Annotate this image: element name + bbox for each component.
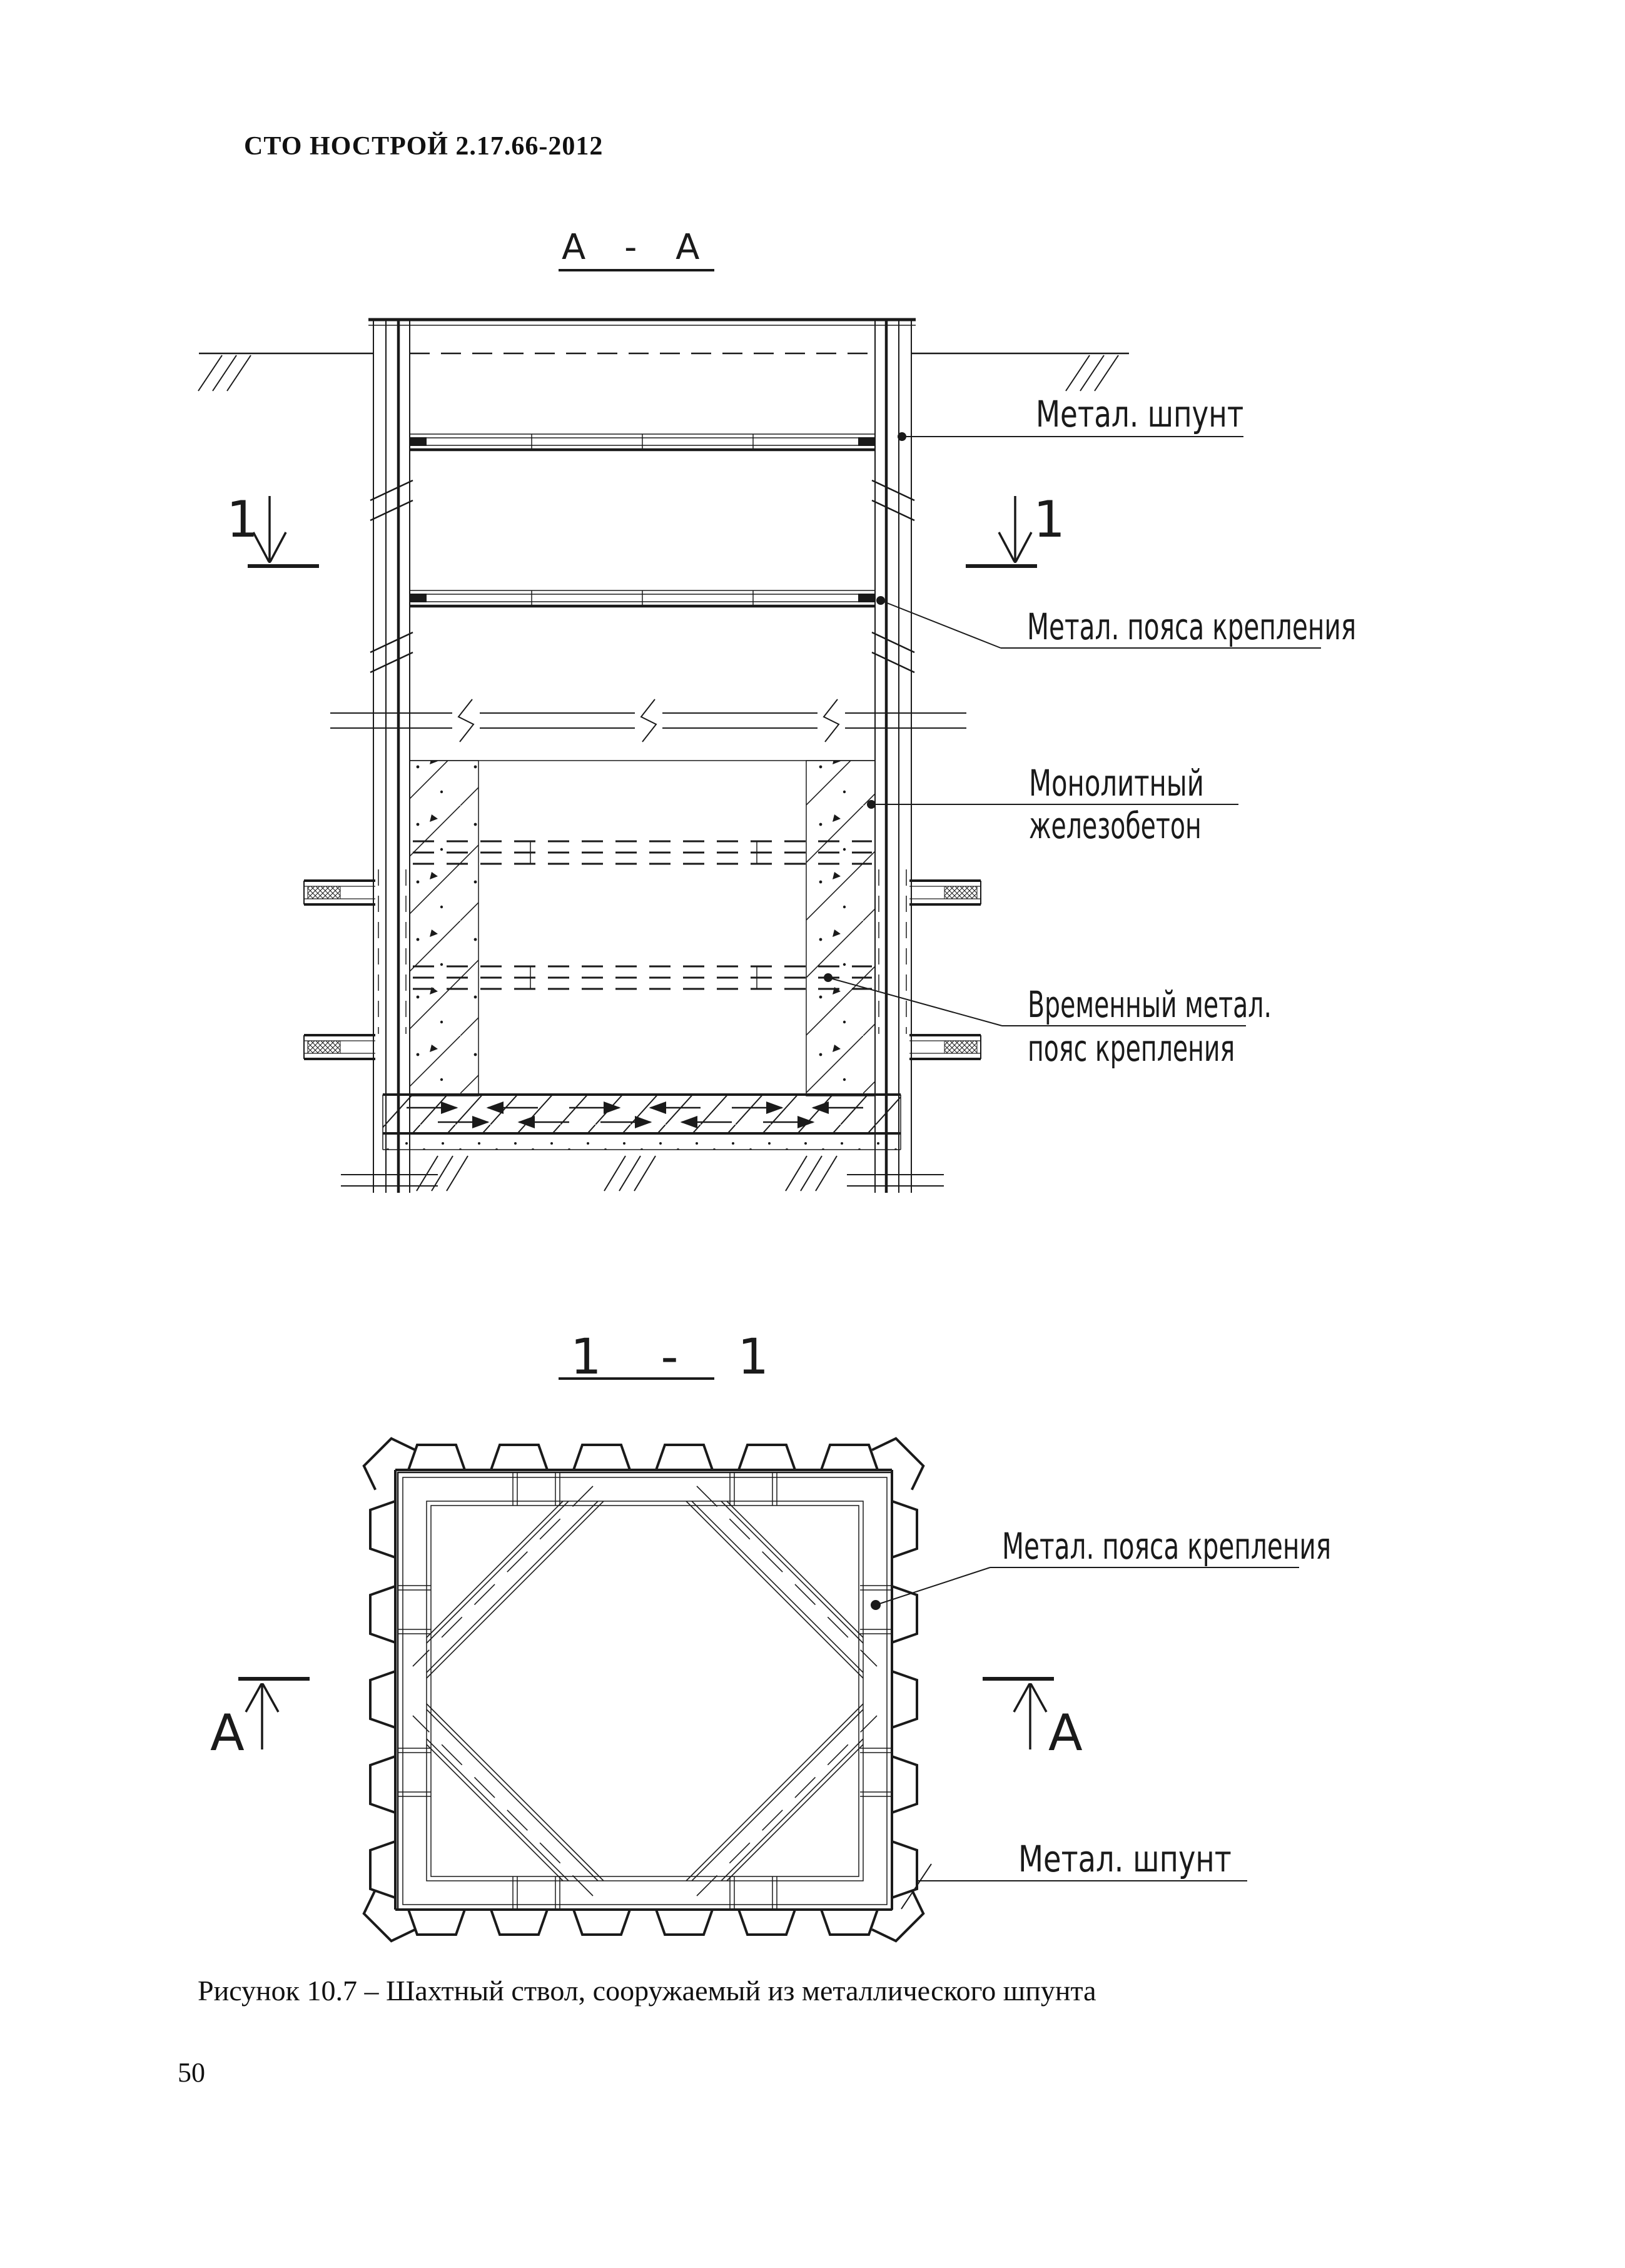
label-sheet-pile-plan: Метал. шпунт (1018, 1838, 1232, 1880)
label-belts-aa: Метал. пояса крепления (1027, 606, 1356, 648)
label-concrete-line2: железобетон (1029, 804, 1202, 847)
bottom-slab (383, 1095, 901, 1150)
section-11-drawing: 1 - 1 (210, 1329, 1331, 1947)
label-temp-belt-line1: Временный метал. (1028, 983, 1272, 1026)
labels-section-11: Метал. пояса крепления Метал. шпунт (871, 1526, 1331, 1909)
label-temp-belt-line2: пояс крепления (1028, 1027, 1235, 1070)
cut-marker-a-right-label: А (1048, 1704, 1083, 1762)
section-aa-drawing: А - А (198, 227, 1356, 1193)
figure-caption: Рисунок 10.7 – Шахтный ствол, сооружаемы… (198, 1974, 1096, 2007)
page-number: 50 (178, 2057, 205, 2088)
waler-frame-plan (398, 1472, 893, 1910)
sheet-pile-wall-left (370, 320, 413, 1193)
technical-drawing-canvas: А - А (0, 0, 1625, 2268)
sheet-pile-outline-plan (358, 1432, 929, 1947)
section-11-title: 1 - 1 (570, 1329, 785, 1385)
cut-marker-1-left: 1 (226, 490, 319, 566)
document-page: СТО НОСТРОЙ 2.17.66-2012 (0, 0, 1625, 2268)
label-belts-plan: Метал. пояса крепления (1002, 1526, 1331, 1567)
sheet-pile-wall-right (872, 320, 914, 1193)
cut-marker-1-right-label: 1 (1033, 490, 1065, 549)
cut-marker-a-left-label: А (210, 1704, 245, 1762)
break-line (330, 699, 966, 742)
cut-marker-1-right: 1 (966, 490, 1065, 566)
cut-marker-1-left-label: 1 (226, 490, 258, 549)
cut-marker-a-right: А (983, 1679, 1083, 1762)
hidden-belt-upper (413, 841, 872, 864)
corner-braces (413, 1486, 877, 1896)
monolithic-concrete-walls (410, 761, 875, 1096)
external-walers (304, 869, 981, 1059)
hidden-belt-lower (413, 966, 872, 989)
subsoil-hatch (341, 1156, 944, 1191)
section-aa-title: А - А (562, 227, 708, 268)
ground-line (198, 353, 1129, 391)
label-sheet-pile-aa: Метал. шпунт (1036, 394, 1243, 436)
label-concrete-line1: Монолитный (1029, 762, 1204, 804)
cut-marker-a-left: А (210, 1679, 310, 1762)
metal-belt-2 (410, 590, 875, 606)
metal-belt-1 (410, 434, 875, 450)
